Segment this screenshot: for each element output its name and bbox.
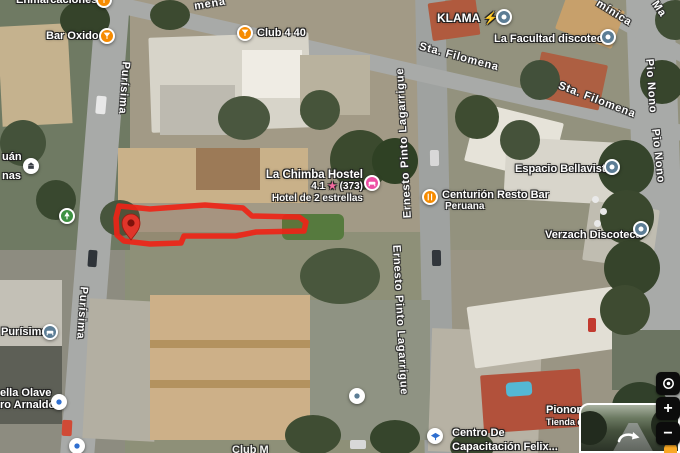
juan-line1: uán	[2, 151, 22, 163]
poi-marker-olave[interactable]	[51, 394, 67, 410]
rating-value: 4.1	[311, 181, 325, 192]
poi-label-la-facultad[interactable]: La Facultad discoteca	[494, 33, 609, 45]
satellite-map-canvas[interactable]: Purísima Purísima mena Sta. Filomena Sta…	[0, 0, 680, 453]
bed-icon	[45, 327, 55, 337]
poi-marker-centurion[interactable]	[422, 189, 438, 205]
poi-marker-purisima-poi[interactable]	[42, 324, 58, 340]
blue-dot-icon	[54, 397, 64, 407]
inset-tree	[579, 411, 607, 445]
restaurant-icon	[425, 192, 435, 202]
poi-marker-park[interactable]	[59, 208, 75, 224]
poi-label-centro-capacitacion[interactable]: Centro De Capacitación Felix...	[452, 427, 558, 453]
dot-icon	[636, 224, 646, 234]
hostel-subtitle: Hotel de 2 estrellas	[266, 193, 363, 205]
olave-line2: ro Arnaldo	[0, 399, 55, 411]
poi-label-purisima-poi[interactable]: Purísima	[1, 326, 47, 338]
poi-label-club-4-40[interactable]: Club 4 40	[257, 27, 306, 39]
poi-marker-klama[interactable]	[496, 9, 512, 25]
poi-marker-espacio-bellavista[interactable]	[604, 159, 620, 175]
blue-dot-icon	[72, 441, 82, 451]
poi-label-la-chimba-hostel[interactable]: La Chimba Hostel 4.1 ★ (373) Hotel de 2 …	[266, 169, 363, 205]
poi-marker-club-4-40[interactable]	[237, 25, 253, 41]
poi-label-bar-oxido[interactable]: Bar Oxido	[46, 30, 99, 42]
review-count: (373)	[340, 181, 363, 192]
zoom-in-button[interactable]: +	[656, 397, 680, 420]
restaurant-name: Centurión Resto Bar	[442, 189, 549, 201]
poi-label-verzach[interactable]: Verzach Discoteca	[545, 229, 642, 241]
poi-label-centurion[interactable]: Centurión Resto Bar Peruana	[442, 189, 549, 213]
rotate-arrow-icon	[615, 429, 641, 445]
poi-marker-bar-oxido[interactable]	[99, 28, 115, 44]
dot-icon	[499, 12, 509, 22]
tree-icon	[62, 211, 72, 221]
klama-text: KLAMA	[437, 11, 480, 25]
hostel-rating-row: 4.1 ★ (373)	[266, 181, 363, 193]
poi-marker-juan[interactable]	[23, 158, 39, 174]
compass-button[interactable]	[656, 372, 680, 395]
poi-marker-verzach[interactable]	[633, 221, 649, 237]
restaurant-subtitle: Peruana	[445, 201, 549, 213]
poi-label-enmarcaciones[interactable]: Enmarcaciones	[16, 0, 97, 6]
poi-marker-la-facultad[interactable]	[600, 29, 616, 45]
dot-icon	[607, 162, 617, 172]
compass-icon	[661, 376, 676, 391]
bed-icon	[367, 178, 377, 188]
graduation-cap-icon	[430, 431, 441, 442]
olave-line1: ella Olave	[0, 387, 55, 399]
hostel-name: La Chimba Hostel	[266, 169, 363, 181]
centro-line2: Capacitación Felix...	[452, 441, 558, 453]
centro-line1: Centro De	[452, 427, 558, 439]
poi-marker-centro-capacitacion[interactable]	[427, 428, 443, 444]
poi-label-klama[interactable]: KLAMA ⚡	[437, 12, 498, 24]
poi-label-espacio-bellavista[interactable]: Espacio Bellavista	[515, 163, 612, 175]
poi-marker-la-chimba-hostel[interactable]	[364, 175, 380, 191]
dot-icon	[352, 391, 362, 401]
poi-label-olave[interactable]: ella Olave ro Arnaldo	[0, 387, 55, 411]
zoom-out-button[interactable]: −	[656, 422, 680, 445]
poi-label-club-m[interactable]: Club M	[232, 444, 269, 453]
star-icon: ★	[328, 181, 337, 192]
poi-marker-unnamed[interactable]	[349, 388, 365, 404]
cocktail-icon	[102, 31, 112, 41]
cocktail-icon	[99, 0, 109, 5]
dot-icon	[603, 32, 613, 42]
poi-marker-bottom-cut[interactable]	[69, 438, 85, 453]
poi-label-juan[interactable]: uán nas	[2, 151, 22, 182]
cocktail-icon	[240, 28, 250, 38]
landmark-icon	[26, 161, 36, 171]
juan-line2: nas	[2, 170, 22, 182]
